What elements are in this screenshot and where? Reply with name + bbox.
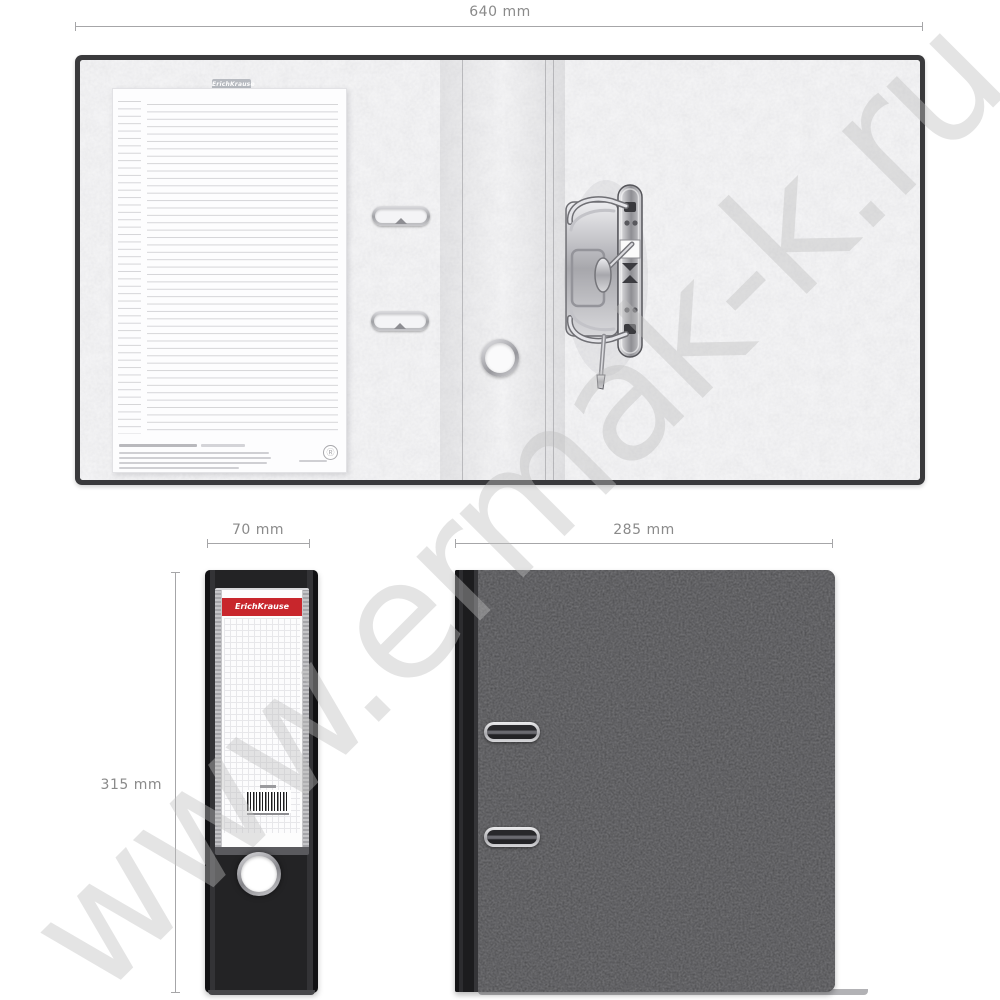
dimension-label-315mm: 315 mm <box>100 777 162 793</box>
label-metal-edge-left <box>215 590 221 847</box>
fineprint-row <box>119 457 271 459</box>
lined-insert-sheet: Ⓡ <box>112 88 347 473</box>
fineprint-title <box>119 444 197 447</box>
slot-inner <box>487 830 537 844</box>
fold-line-mid <box>545 60 546 480</box>
dimension-label-640mm: 640 mm <box>450 4 550 20</box>
fold-line-left <box>462 60 463 480</box>
spine-bottom-edge <box>208 990 315 995</box>
grommet-inner <box>485 343 515 373</box>
sheet-lines-main <box>147 104 338 434</box>
dimension-line-315mm <box>175 572 176 993</box>
finger-hole-inner <box>241 856 277 892</box>
spine-label-brand: ErichKrause <box>222 598 302 616</box>
product-dimension-diagram: 640 mm ErichKrause Ⓡ <box>0 0 1000 1000</box>
cover-rivet-slot-bottom <box>371 311 429 331</box>
fold-line-right <box>553 60 554 480</box>
fineprint-row <box>119 462 267 464</box>
fineprint-url <box>299 460 327 462</box>
dimension-label-70mm: 70 mm <box>208 522 308 538</box>
finger-hole-grommet <box>481 339 519 377</box>
dimension-line-285mm <box>455 543 833 544</box>
label-metal-edge-right <box>303 590 309 847</box>
binder-front-cover-view <box>455 570 835 992</box>
dimension-label-285mm: 285 mm <box>594 522 694 538</box>
barcode-digits <box>247 813 289 815</box>
fineprint-row <box>119 467 239 469</box>
slot-inner <box>487 725 537 739</box>
dimension-line-70mm <box>207 543 310 544</box>
lever-arch-mechanism <box>556 178 648 394</box>
spine-fold-band <box>440 60 565 480</box>
fineprint-title-2 <box>201 444 245 447</box>
fineprint-logo-icon: Ⓡ <box>323 445 338 460</box>
spine-label-holder: ErichKrause <box>215 588 309 855</box>
spine-label-card: ErichKrause <box>222 592 302 837</box>
dimension-line-640mm <box>75 26 923 27</box>
cover-rivet-slot-top <box>372 206 430 226</box>
sheet-lines-left-column <box>118 101 141 434</box>
spine-finger-hole <box>237 852 281 896</box>
barcode-number <box>260 785 276 788</box>
fineprint-row <box>119 452 269 454</box>
front-cover-spine-strip <box>455 570 478 992</box>
front-rivet-slot-bottom <box>484 827 540 847</box>
front-rivet-slot-top <box>484 722 540 742</box>
cover-texture <box>455 570 835 992</box>
barcode <box>247 792 289 811</box>
